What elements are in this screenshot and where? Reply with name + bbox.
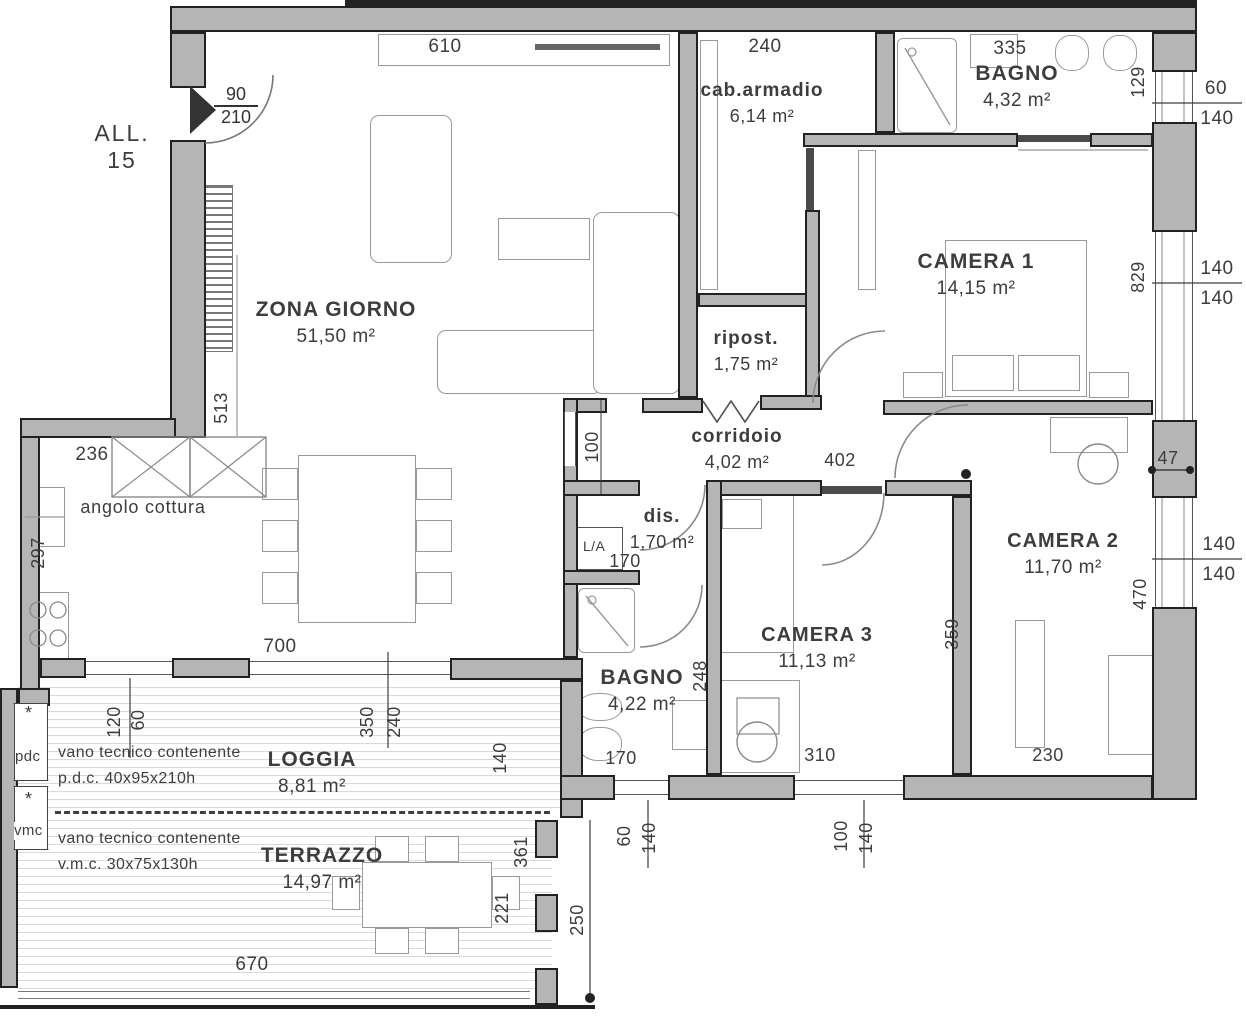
dim-297: 297 <box>28 523 48 583</box>
pdc-asterisk: * <box>25 704 32 722</box>
room-label-loggia: LOGGIA 8,81 m² <box>232 748 392 798</box>
dim-100: 100 <box>582 417 602 477</box>
dim-230: 230 <box>1018 745 1078 766</box>
sheet-label: ALL. 15 <box>76 120 168 174</box>
dim-670: 670 <box>222 954 282 976</box>
dim-140-cam3: 140 <box>856 808 876 868</box>
dim-350: 350 <box>357 692 377 752</box>
bagno2-door-arc <box>640 585 702 647</box>
dim-221: 221 <box>492 878 512 938</box>
ripost-door-leaf <box>806 148 814 210</box>
dim-335: 335 <box>975 38 1045 60</box>
dim-240-loggia: 240 <box>384 692 404 752</box>
vmc-asterisk: * <box>25 790 32 808</box>
dim-140-c2b: 140 <box>1194 564 1244 586</box>
dim-60-bagno: 60 <box>614 806 634 866</box>
dim-170-dis: 170 <box>600 551 650 572</box>
dim-610: 610 <box>410 36 480 58</box>
dim-236: 236 <box>62 444 122 466</box>
vano-tecnico-vmc: vano tecnico contenente v.m.c. 30x75x130… <box>58 826 241 878</box>
floor-plan: ALL. 15 90 210 ZONA GIORNO 51,50 m² ango… <box>0 0 1246 1016</box>
room-label-camera3: CAMERA 3 11,13 m² <box>737 624 897 673</box>
dim-402: 402 <box>810 450 870 471</box>
camera3-door-leaf <box>822 486 882 494</box>
bagno1-sliding-leaf <box>1018 135 1090 142</box>
room-label-camera2: CAMERA 2 11,70 m² <box>983 530 1143 579</box>
dim-361: 361 <box>511 822 531 882</box>
sheet-label-text: ALL. 15 <box>94 120 149 173</box>
dim-60-top: 60 <box>1196 78 1236 100</box>
door-width: 90 <box>214 84 258 107</box>
dim-140-c1b: 140 <box>1192 288 1242 310</box>
dim-47: 47 <box>1148 448 1188 469</box>
camera3-door-arc <box>822 493 884 565</box>
entrance-door-size: 90 210 <box>214 84 258 128</box>
dim-240: 240 <box>730 36 800 58</box>
dim-140-top: 140 <box>1192 108 1242 130</box>
dim-60-loggia: 60 <box>128 690 148 750</box>
room-label-angolo-cottura: angolo cottura <box>58 497 228 518</box>
dim-700: 700 <box>245 636 315 658</box>
dim-100-cam3: 100 <box>831 806 851 866</box>
camera2-door-arc <box>895 405 968 478</box>
room-label-cab-armadio: cab.armadio 6,14 m² <box>672 80 852 127</box>
dim-129: 129 <box>1128 52 1148 112</box>
room-label-zona-giorno: ZONA GIORNO 51,50 m² <box>246 298 426 348</box>
room-label-dis: dis. 1,70 m² <box>582 506 742 553</box>
dim-140-c2a: 140 <box>1194 534 1244 556</box>
dim-470: 470 <box>1130 564 1150 624</box>
room-label-ripost: ripost. 1,75 m² <box>666 328 826 375</box>
entrance-arrow-icon <box>190 86 216 134</box>
opening-zigzag <box>703 401 759 422</box>
dim-513: 513 <box>211 378 231 438</box>
room-label-bagno1: BAGNO 4,32 m² <box>927 62 1107 112</box>
dim-140-loggia: 140 <box>490 728 510 788</box>
room-label-corridoio: corridoio 4,02 m² <box>657 426 817 473</box>
dim-310: 310 <box>790 745 850 766</box>
dim-250: 250 <box>567 890 587 950</box>
room-label-terrazzo: TERRAZZO 14,97 m² <box>242 844 402 894</box>
dim-170-bagno: 170 <box>596 748 646 769</box>
room-label-camera1: CAMERA 1 14,15 m² <box>886 250 1066 300</box>
dim-120: 120 <box>104 692 124 752</box>
pdc-label: pdc <box>15 748 40 766</box>
dim-359: 359 <box>942 604 962 664</box>
vano-tecnico-pdc: vano tecnico contenente p.d.c. 40x95x210… <box>58 740 241 792</box>
washer-label: L/A <box>583 538 605 554</box>
dim-140-bagno: 140 <box>639 808 659 868</box>
dim-140-c1a: 140 <box>1192 258 1242 280</box>
dim-248: 248 <box>690 646 710 706</box>
door-height: 210 <box>214 107 258 128</box>
vmc-label: vmc <box>14 822 43 840</box>
dim-829: 829 <box>1128 247 1148 307</box>
